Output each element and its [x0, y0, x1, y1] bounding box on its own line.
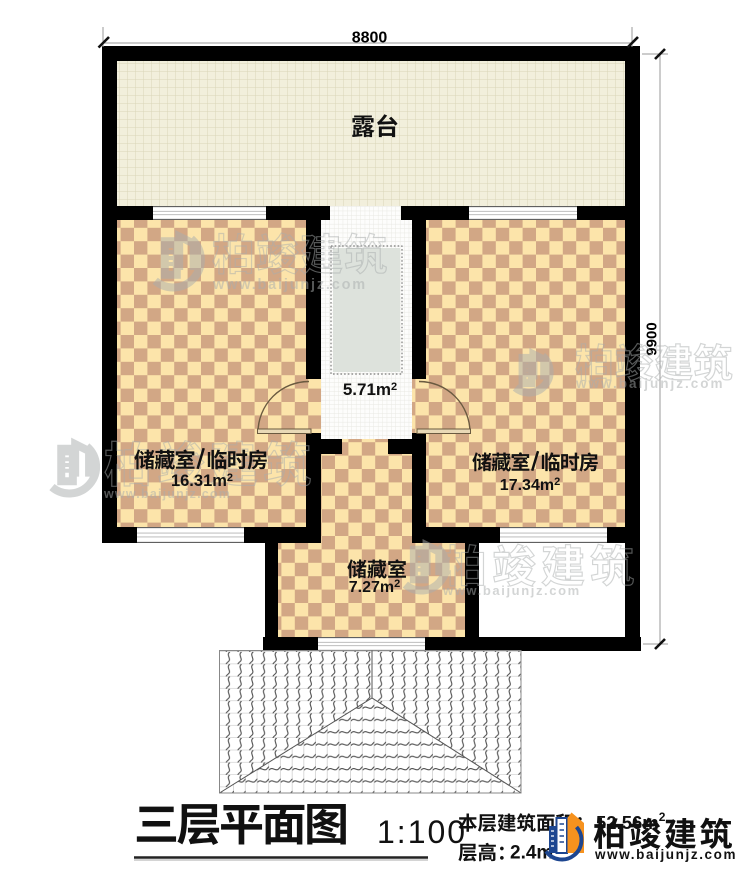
svg-text:8800: 8800	[352, 30, 388, 47]
svg-text:7.27m2: 7.27m2	[349, 578, 401, 596]
svg-text:17.34m2: 17.34m2	[500, 476, 560, 494]
svg-text:www.baijunjz.com: www.baijunjz.com	[575, 376, 725, 391]
svg-text:1:100: 1:100	[377, 814, 467, 850]
svg-text:16.31m2: 16.31m2	[171, 472, 233, 490]
svg-text:www.baijunjz.com: www.baijunjz.com	[594, 847, 737, 862]
svg-text:5.71m2: 5.71m2	[343, 380, 397, 399]
svg-text:www.baijunjz.com: www.baijunjz.com	[212, 277, 367, 293]
svg-text:www.baijunjz.com: www.baijunjz.com	[442, 583, 581, 598]
